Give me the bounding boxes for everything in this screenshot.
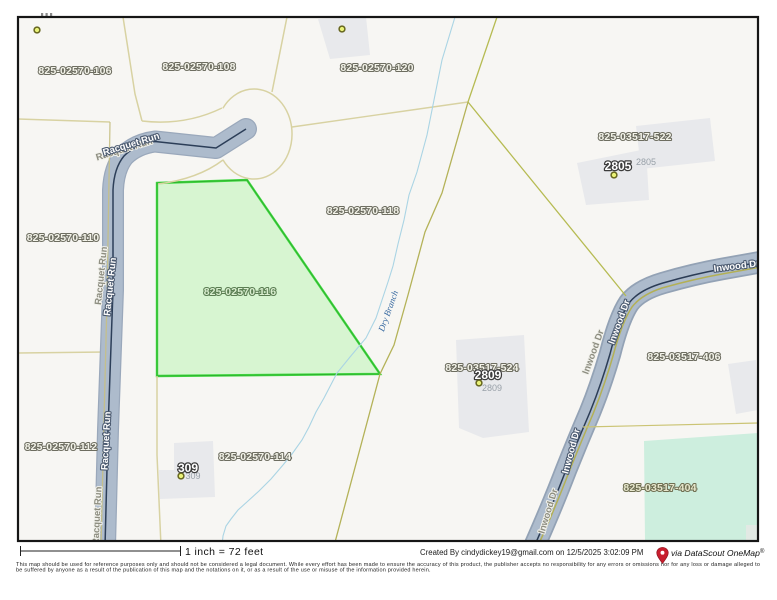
svg-text:2805: 2805 <box>605 159 632 173</box>
svg-text:825-02570-114: 825-02570-114 <box>219 451 292 463</box>
svg-text:825-02570-110: 825-02570-110 <box>27 232 100 244</box>
svg-text:825-02570-106: 825-02570-106 <box>38 65 111 77</box>
svg-text:825-02570-108: 825-02570-108 <box>162 61 235 73</box>
svg-text:via DataScout OneMap®: via DataScout OneMap® <box>671 548 765 558</box>
svg-text:Created By cindydickey19@gmai: Created By cindydickey19@gmail.com on 12… <box>420 548 643 557</box>
svg-text:825-02570-120: 825-02570-120 <box>340 62 413 74</box>
svg-text:825-03517-522: 825-03517-522 <box>598 131 671 143</box>
svg-text:825-02570-118: 825-02570-118 <box>327 205 400 217</box>
svg-text:2805: 2805 <box>636 157 656 167</box>
svg-text:be suffered by anyone as a res: be suffered by anyone as a result of the… <box>16 568 431 574</box>
svg-text:825-03517-406: 825-03517-406 <box>647 351 720 363</box>
svg-text:825-02570-112: 825-02570-112 <box>25 441 98 453</box>
svg-text:2809: 2809 <box>482 383 502 393</box>
svg-text:825-02570-116: 825-02570-116 <box>204 286 277 298</box>
svg-text:1 inch = 72 feet: 1 inch = 72 feet <box>185 546 264 558</box>
svg-text:825-03517-404: 825-03517-404 <box>623 482 696 494</box>
